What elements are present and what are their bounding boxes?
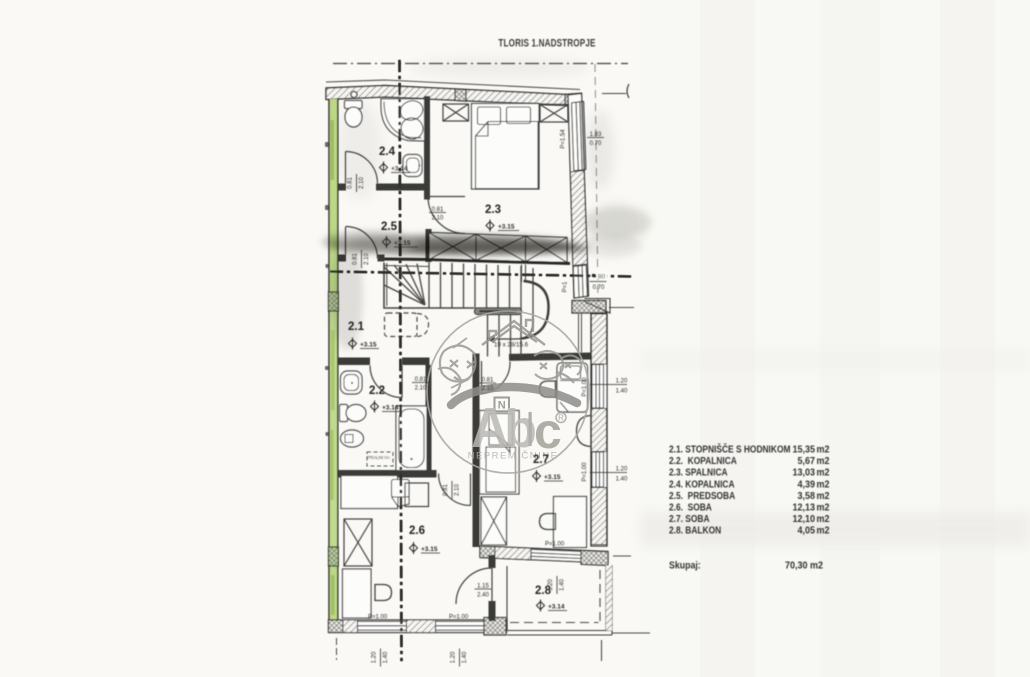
svg-text:1.20: 1.20 [372, 651, 378, 663]
svg-text:2.10: 2.10 [415, 386, 427, 392]
svg-text:12,10: 12,10 [793, 514, 815, 526]
svg-text:2.6. SOBA: 2.6. SOBA [669, 502, 712, 513]
svg-text:0.70: 0.70 [593, 285, 605, 291]
svg-text:1.40: 1.40 [616, 477, 628, 483]
svg-text:2.40: 2.40 [477, 593, 489, 599]
svg-text:2.2: 2.2 [369, 385, 385, 397]
svg-text:2.10: 2.10 [364, 253, 370, 265]
svg-text:2.4: 2.4 [379, 146, 396, 158]
svg-text:2.10: 2.10 [432, 216, 444, 222]
svg-text:+3.15: +3.15 [394, 240, 411, 247]
svg-text:m2: m2 [817, 490, 830, 502]
svg-text:2.8. BALKON: 2.8. BALKON [669, 525, 721, 536]
svg-text:0.81: 0.81 [443, 484, 449, 496]
svg-text:0.70: 0.70 [590, 141, 602, 147]
svg-text:19 x 28/15.6: 19 x 28/15.6 [494, 342, 529, 349]
svg-text:P=1.00: P=1.00 [545, 542, 565, 548]
svg-text:0.81: 0.81 [353, 253, 359, 265]
svg-text:13,03: 13,03 [793, 467, 815, 479]
svg-text:m2: m2 [817, 467, 830, 479]
svg-text:2.5. PREDSOBA: 2.5. PREDSOBA [669, 490, 735, 501]
svg-text:m2: m2 [817, 525, 830, 537]
svg-text:1.40: 1.40 [560, 579, 566, 591]
svg-text:Skupaj:: Skupaj: [669, 559, 701, 571]
svg-text:m2: m2 [817, 514, 830, 526]
svg-text:2.1: 2.1 [348, 321, 365, 333]
svg-text:1.20: 1.20 [451, 651, 457, 663]
svg-text:2.4. KOPALNICA: 2.4. KOPALNICA [669, 479, 735, 490]
svg-text:2.3: 2.3 [485, 204, 501, 216]
svg-text:1.20: 1.20 [616, 379, 628, 385]
svg-text:m2: m2 [817, 479, 830, 491]
svg-text:P=1.00: P=1.00 [582, 377, 588, 397]
svg-text:3,58: 3,58 [797, 490, 815, 502]
svg-text:P=1: P=1 [563, 281, 569, 293]
svg-text:1.20: 1.20 [548, 579, 554, 591]
svg-text:5,67: 5,67 [797, 456, 815, 468]
svg-text:1.40: 1.40 [462, 651, 468, 663]
svg-text:2.10: 2.10 [455, 484, 461, 496]
svg-text:1.40: 1.40 [616, 389, 628, 395]
svg-text:TLORIS 1.NADSTROPJE: TLORIS 1.NADSTROPJE [498, 37, 595, 50]
svg-text:0.81: 0.81 [348, 177, 354, 189]
svg-text:2.1. STOPNIŠČE S HODNIKOM: 2.1. STOPNIŠČE S HODNIKOM [669, 443, 791, 455]
svg-text:70,30 m2: 70,30 m2 [785, 560, 823, 572]
svg-text:12,13: 12,13 [793, 502, 815, 514]
svg-text:P=1.00: P=1.00 [449, 615, 469, 621]
svg-text:+3.15: +3.15 [360, 342, 377, 349]
svg-text:+3.15: +3.15 [544, 474, 561, 481]
svg-text:4,39: 4,39 [797, 479, 815, 491]
svg-text:+3.14: +3.14 [382, 405, 399, 412]
svg-text:R: R [558, 414, 564, 423]
svg-text:2.10: 2.10 [482, 386, 494, 392]
svg-text:2.7: 2.7 [533, 454, 549, 466]
svg-text:4,05: 4,05 [797, 525, 815, 537]
svg-text:2.10: 2.10 [359, 177, 365, 189]
svg-text:m2: m2 [817, 456, 830, 468]
svg-text:+3.15: +3.15 [421, 546, 438, 553]
svg-text:m2: m2 [817, 502, 830, 514]
svg-text:80: 80 [598, 274, 606, 281]
svg-text:2.5: 2.5 [381, 221, 398, 233]
svg-text:P=1.00: P=1.00 [582, 462, 588, 482]
svg-text:PRALNI H=: PRALNI H= [367, 455, 391, 460]
svg-text:+3.14: +3.14 [391, 166, 408, 173]
svg-text:15,35: 15,35 [793, 444, 816, 456]
svg-text:1.20: 1.20 [616, 467, 628, 473]
svg-text:P=1.54: P=1.54 [561, 129, 567, 149]
svg-text:m2: m2 [817, 444, 830, 456]
svg-text:2.6: 2.6 [409, 525, 425, 537]
svg-text:1.40: 1.40 [383, 651, 389, 663]
svg-text:+3.14: +3.14 [548, 604, 565, 611]
svg-text:2.3. SPALNICA: 2.3. SPALNICA [669, 467, 728, 478]
svg-text:P=1.00: P=1.00 [368, 615, 388, 621]
svg-text:2.2. KOPALNICA: 2.2. KOPALNICA [669, 455, 737, 466]
svg-text:2.7. SOBA: 2.7. SOBA [669, 513, 710, 524]
svg-text:+3.15: +3.15 [498, 224, 515, 231]
